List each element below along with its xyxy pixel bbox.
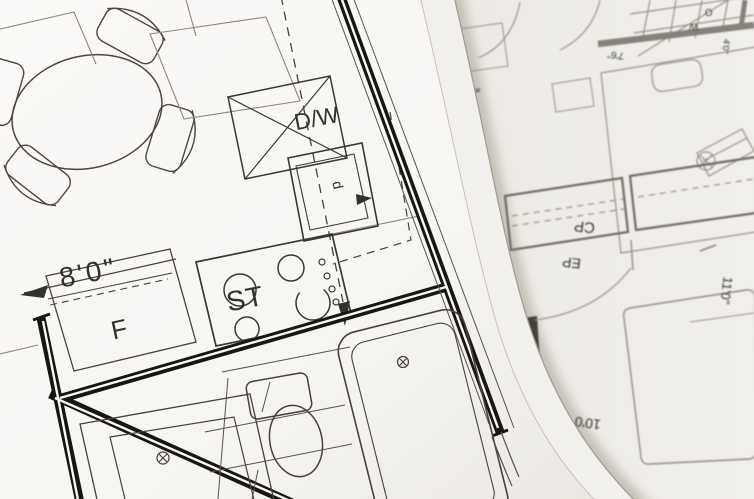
blueprint-photo-svg: CP EP 10'0" 11'0" 6'0" 7'6" 4'0" W O: [0, 0, 754, 499]
blueprint-photo: CP EP 10'0" 11'0" 6'0" 7'6" 4'0" W O: [0, 0, 754, 499]
room-o-label: O: [704, 6, 713, 18]
room-w-label: W: [688, 21, 699, 33]
closet-cp-label: CP: [573, 217, 596, 236]
dim-4-label: 4'0": [720, 38, 732, 54]
closet-ep-label: EP: [561, 254, 581, 272]
dim-7-6-label: 7'6": [606, 48, 624, 61]
